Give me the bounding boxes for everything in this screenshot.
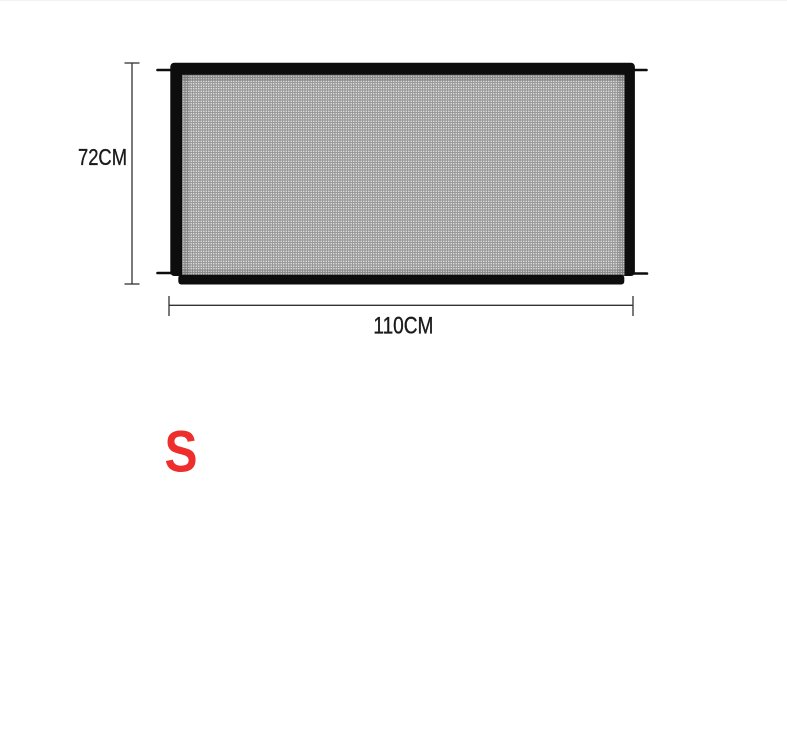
svg-text:110CM: 110CM	[373, 313, 433, 340]
svg-text:S: S	[165, 420, 198, 485]
svg-text:72CM: 72CM	[78, 144, 127, 170]
